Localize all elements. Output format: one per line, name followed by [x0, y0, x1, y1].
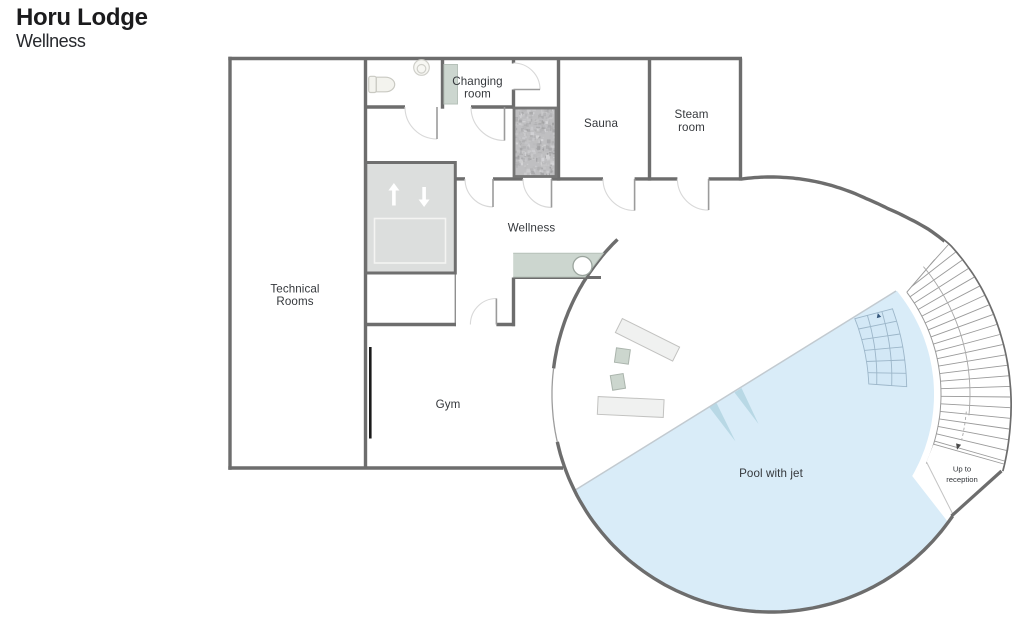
svg-text:Steam: Steam [674, 108, 708, 121]
svg-text:Wellness: Wellness [508, 222, 556, 235]
svg-text:room: room [464, 88, 491, 101]
svg-text:reception: reception [946, 475, 978, 484]
svg-text:Up to: Up to [953, 465, 971, 474]
svg-text:Changing: Changing [452, 75, 502, 88]
svg-text:Pool with jet: Pool with jet [739, 467, 803, 480]
svg-text:Rooms: Rooms [276, 295, 313, 308]
svg-text:Technical: Technical [270, 283, 319, 296]
svg-text:Gym: Gym [436, 398, 461, 411]
svg-text:Sauna: Sauna [584, 117, 618, 130]
svg-text:room: room [678, 121, 705, 134]
